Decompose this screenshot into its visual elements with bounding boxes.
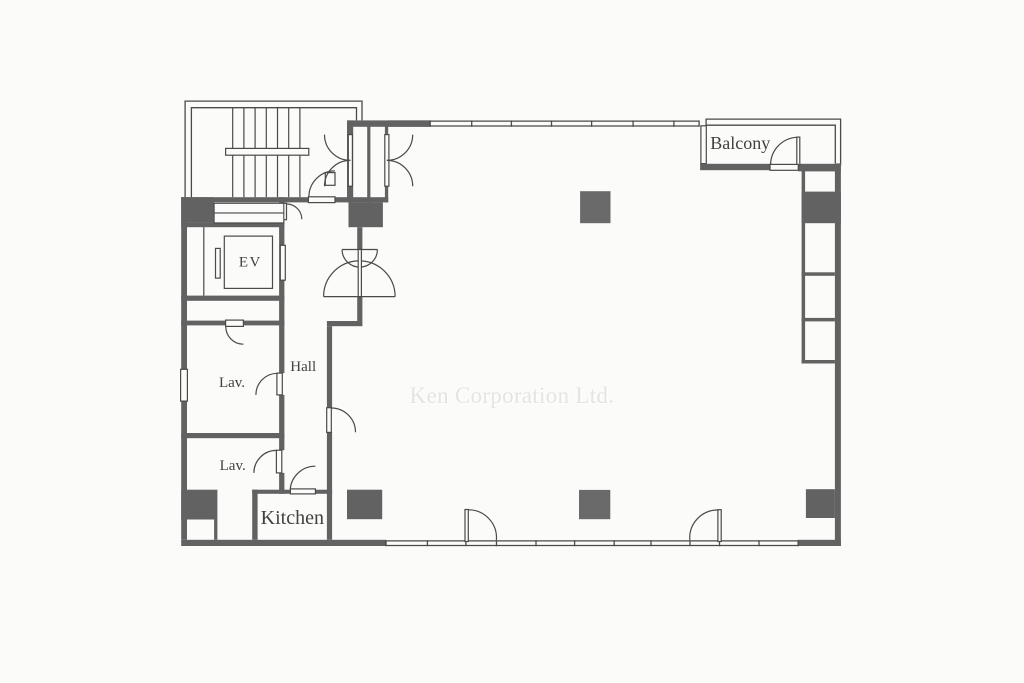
svg-text:Ken Corporation Ltd.: Ken Corporation Ltd. <box>410 383 615 408</box>
svg-text:Kitchen: Kitchen <box>261 507 324 529</box>
svg-text:EV: EV <box>239 255 262 271</box>
svg-text:Hall: Hall <box>290 359 316 375</box>
svg-text:Balcony: Balcony <box>710 133 770 153</box>
svg-text:Lav.: Lav. <box>220 458 246 474</box>
svg-text:Lav.: Lav. <box>219 375 245 391</box>
